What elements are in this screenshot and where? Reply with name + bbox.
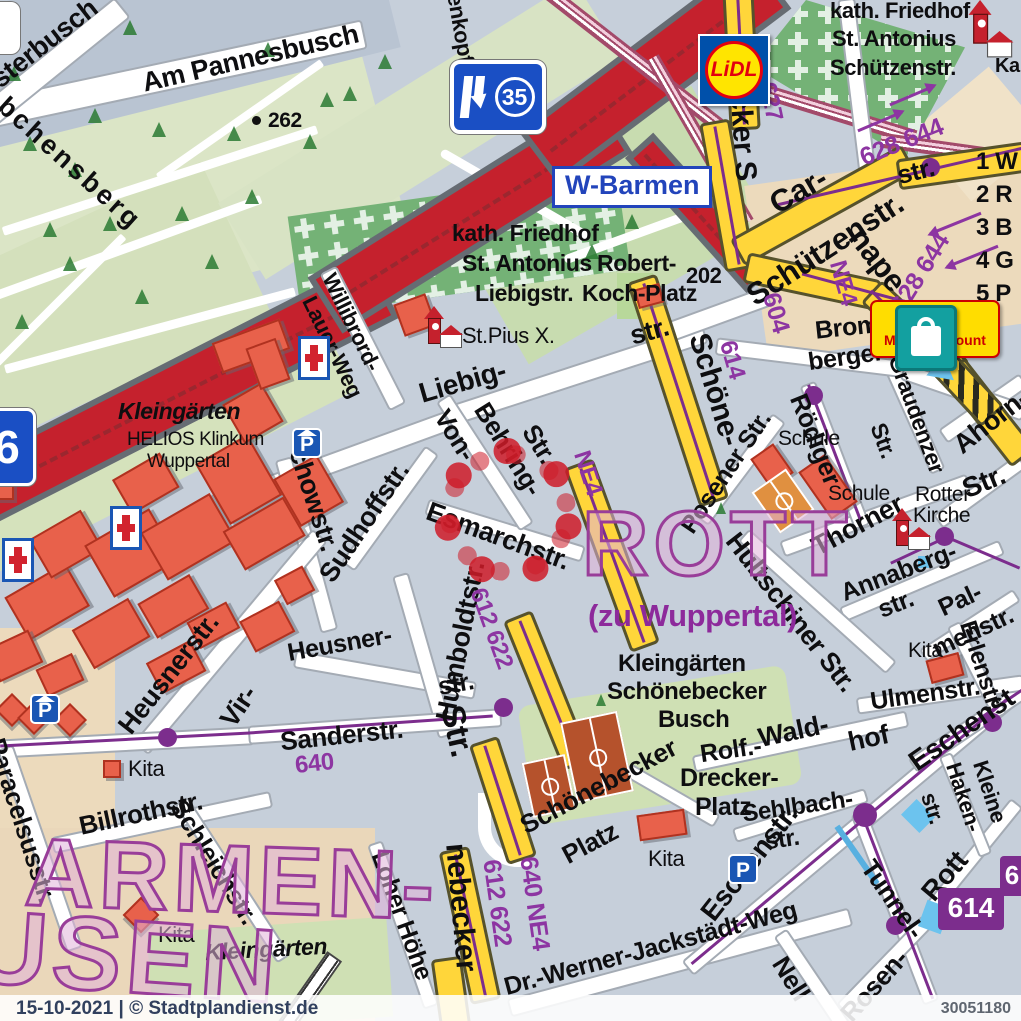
tree-icon: [15, 314, 29, 329]
motorway-exit-sign: 35: [450, 60, 546, 134]
parking-letter: P: [736, 859, 750, 882]
church-icon-rotter-kirche: [892, 512, 932, 550]
kapelle-label: Kap: [995, 56, 1021, 76]
cemetery-ne-label-1: kath. Friedhof: [830, 0, 970, 22]
parking-garage-icon: P: [30, 694, 60, 724]
kita-building: [103, 760, 121, 778]
tree-icon: [596, 694, 606, 706]
parking-garage-icon: P: [292, 428, 322, 458]
hospital-icon: [110, 506, 142, 550]
house-number-202: 202: [686, 265, 722, 287]
tree-icon: [303, 134, 317, 149]
transit-label-640: 640: [294, 750, 335, 778]
kita-label: Kita: [648, 848, 684, 870]
cemetery-sw-label-2: St. Antonius: [462, 252, 592, 275]
exit-name-sign: W-Barmen: [552, 166, 712, 208]
transit-stop: [494, 698, 513, 717]
church-icon-st-pius: [424, 310, 464, 348]
tree-icon: [175, 206, 189, 221]
area-label-helios-2: Wuppertal: [147, 452, 230, 471]
cemetery-ne-label-3: Schützenstr.: [830, 57, 956, 79]
poi-legend-item: 1 W: [976, 150, 1021, 174]
street-label-hof: hof: [846, 721, 892, 756]
street-label-heusner-b: str.: [436, 669, 476, 700]
rotter-kirche-label-1: Rotter: [915, 484, 970, 505]
transit-stop: [158, 728, 177, 747]
tree-icon: [227, 126, 241, 141]
tree-icon: [205, 254, 219, 269]
tree-icon: [625, 214, 639, 229]
district-label-rott: ROTT: [582, 498, 852, 590]
kita-label: Kita: [908, 640, 943, 661]
shopping-bag-icon: [895, 305, 957, 371]
hospital-icon: [298, 336, 330, 380]
tree-icon: [378, 54, 392, 69]
street-label-enkopf: enkopf: [443, 0, 477, 64]
cemetery-sw-label-3: Liebigstr.: [475, 282, 573, 305]
parking-letter: P: [300, 433, 314, 456]
district-label-rott-suffix: (zu Wuppertal): [588, 600, 797, 631]
tree-icon: [63, 256, 77, 271]
parking-letter: P: [38, 699, 52, 722]
transit-stop: [853, 803, 877, 827]
kita-building: [636, 809, 687, 841]
street-label-schoenebecker-s: nebecker: [440, 842, 481, 973]
area-label-helios-1: HELIOS Klinkum: [127, 430, 264, 449]
poi-legend: 1 W 2 R 3 B 4 G 5 P: [976, 150, 1021, 306]
street-label-graudenzer-str: Str.: [866, 420, 900, 461]
street-label-sb-platz-b: Platz: [558, 817, 622, 868]
footer-map-id: 30051180: [941, 1000, 1011, 1018]
lidl-logo: LiDL: [698, 34, 770, 106]
elevation-dot: [252, 116, 261, 125]
transit-label-640-ne4: 640 NE4: [515, 855, 553, 952]
lidl-logo-text: LiDL: [705, 41, 763, 99]
robert-koch-label-2: Koch-Platz: [582, 282, 697, 305]
busch-label-2: Schönebecker: [607, 680, 766, 704]
map-canvas[interactable]: sterbusch Am Pannesbusch 262 bchensberg …: [0, 0, 1021, 1021]
area-label-kleingaerten: Kleingärten: [118, 400, 240, 423]
hospital-icon: [2, 538, 34, 582]
route-badge-614: 614: [938, 888, 1004, 930]
footer-bar: 15-10-2021 | © Stadtplandienst.de 300511…: [0, 995, 1021, 1021]
busch-label-3: Busch: [658, 708, 729, 732]
exit-number: 35: [495, 77, 535, 117]
street-label-schoenebecker-str: Str.: [436, 702, 480, 760]
cemetery-ne-label-2: St. Antonius: [832, 28, 956, 50]
tree-icon: [123, 20, 137, 35]
tree-icon: [343, 86, 357, 101]
elevation-label: 262: [268, 110, 302, 131]
robert-koch-label-1: Robert-: [597, 252, 676, 275]
tree-icon: [43, 222, 57, 237]
tree-icon: [88, 108, 102, 123]
schule-label: Schule: [778, 428, 840, 449]
poi-legend-item: 4 G: [976, 249, 1021, 273]
parking-icon: P: [728, 854, 758, 884]
sign-fragment-nw: [0, 2, 20, 54]
poi-legend-item: 2 R: [976, 183, 1021, 207]
street-label-sander: Sanderstr.: [279, 716, 404, 755]
street-label-drecker-a: Drecker-: [680, 766, 778, 791]
motorway-pictogram-icon: [462, 76, 488, 118]
tree-icon: [245, 189, 259, 204]
cemetery-sw-label-1: kath. Friedhof: [452, 222, 598, 245]
street-label-st-pius: St.Pius X.: [462, 325, 555, 347]
kita-label: Kita: [128, 758, 164, 780]
poi-legend-item: 3 B: [976, 216, 1021, 240]
tree-icon: [152, 122, 166, 137]
tree-icon: [135, 289, 149, 304]
church-icon-kapelle: [969, 5, 1021, 58]
motorway-number-badge: 6: [0, 408, 36, 486]
tree-icon: [320, 92, 334, 107]
busch-label-1: Kleingärten: [618, 652, 746, 676]
footer-date-copyright: 15-10-2021 | © Stadtplandienst.de: [16, 998, 318, 1020]
route-badge-partial: 6: [1000, 856, 1021, 896]
